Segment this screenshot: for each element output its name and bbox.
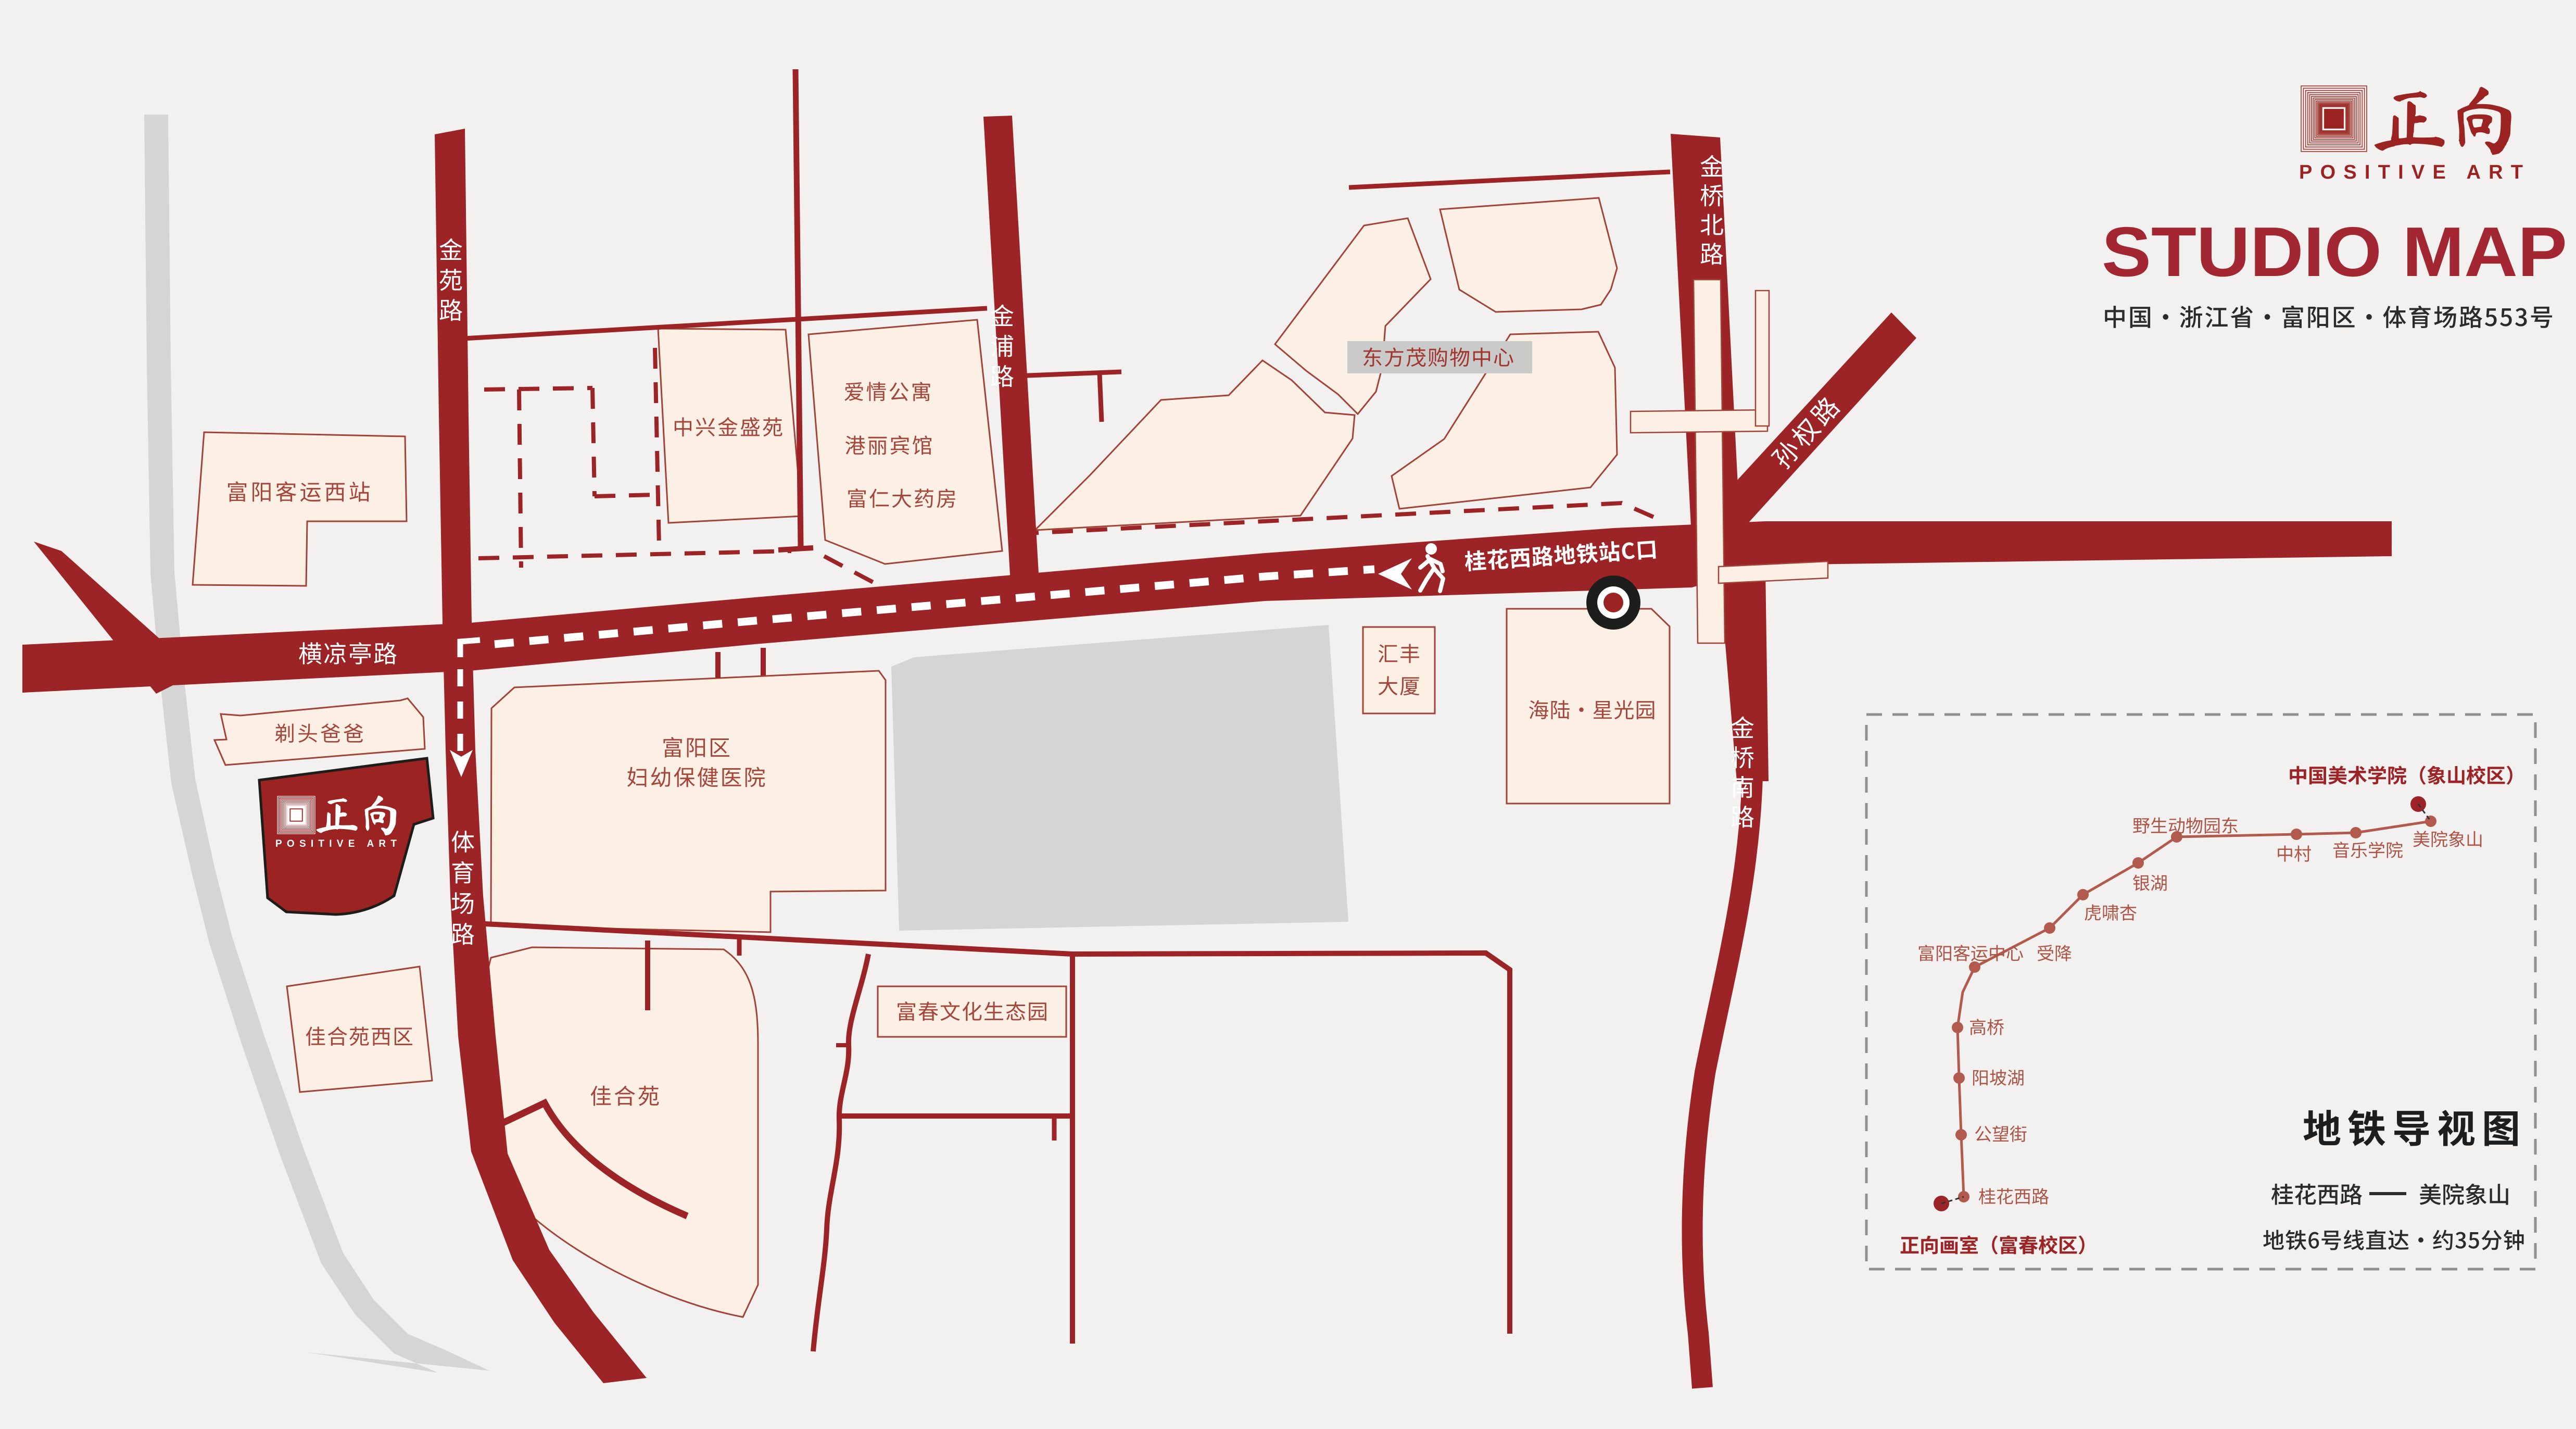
svg-text:STUDIO MAP: STUDIO MAP — [2102, 212, 2567, 291]
svg-text:POSITIVE ART: POSITIVE ART — [2299, 161, 2523, 183]
